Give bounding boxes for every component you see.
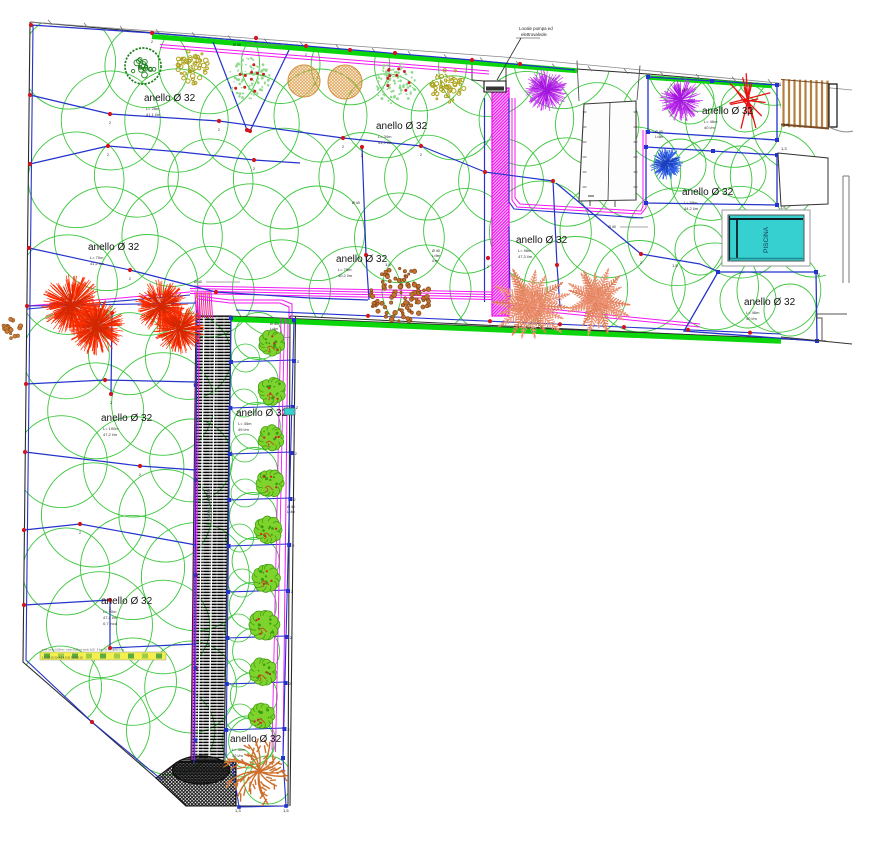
svg-text:2: 2 — [487, 265, 489, 269]
svg-text:1,5: 1,5 — [672, 263, 678, 268]
svg-text:L= 34m: L= 34m — [378, 134, 392, 139]
svg-text:Ø 40: Ø 40 — [352, 201, 360, 205]
svg-text:anello Ø 32: anello Ø 32 — [101, 413, 153, 424]
svg-text:L= 28m: L= 28m — [146, 106, 160, 111]
svg-text:1,5: 1,5 — [783, 122, 789, 127]
svg-text:40 l/m: 40 l/m — [746, 316, 758, 321]
svg-text:4 m³: 4 m³ — [432, 259, 438, 263]
svg-text:L= 45m: L= 45m — [238, 421, 252, 426]
svg-text:Ø 40: Ø 40 — [655, 130, 663, 134]
svg-text:1,3: 1,3 — [781, 146, 787, 151]
svg-text:2: 2 — [342, 145, 344, 149]
svg-text:anello Ø 32: anello Ø 32 — [236, 408, 288, 419]
svg-text:47,2 l/m: 47,2 l/m — [103, 432, 118, 437]
svg-text:2: 2 — [139, 473, 141, 477]
svg-text:Ø 40: Ø 40 — [233, 43, 241, 47]
svg-text:Ø 40: Ø 40 — [287, 505, 295, 509]
svg-text:2: 2 — [129, 277, 131, 281]
svg-text:L= 40m: L= 40m — [232, 747, 246, 752]
svg-text:2: 2 — [361, 154, 363, 158]
svg-text:rampa carrabile: rampa carrabile — [206, 488, 211, 520]
svg-text:L= 46m: L= 46m — [746, 310, 760, 315]
svg-text:L= 100m: L= 100m — [103, 426, 119, 431]
svg-text:anello Ø 32: anello Ø 32 — [744, 297, 796, 308]
svg-text:2: 2 — [107, 153, 109, 157]
svg-text:L=9m: L=9m — [432, 254, 440, 258]
svg-text:anello Ø 32: anello Ø 32 — [230, 734, 282, 745]
svg-text:anello Ø 32: anello Ø 32 — [88, 242, 140, 253]
svg-text:L= 70m: L= 70m — [90, 255, 104, 260]
svg-text:2: 2 — [151, 40, 153, 44]
svg-text:41,2 l/m: 41,2 l/m — [90, 261, 105, 266]
svg-text:0,7 inca: 0,7 inca — [103, 621, 118, 626]
svg-text:2: 2 — [640, 261, 642, 265]
svg-text:47,2 l/m: 47,2 l/m — [103, 615, 118, 620]
svg-text:2: 2 — [109, 121, 111, 125]
svg-text:elettrovalvole: elettrovalvole — [521, 32, 547, 37]
svg-text:44,2 l/m: 44,2 l/m — [684, 206, 699, 211]
svg-text:40 l/m: 40 l/m — [704, 125, 716, 130]
svg-text:1,5 1,5 10 3,0 4,0: 1,5 1,5 10 3,0 4,0 4,0 10 3,0 3,0 10 — [42, 656, 83, 660]
svg-text:L= 75m: L= 75m — [338, 267, 352, 272]
svg-text:2: 2 — [79, 531, 81, 535]
svg-text:41,1 l/m: 41,1 l/m — [146, 112, 161, 117]
svg-text:1,5: 1,5 — [385, 262, 391, 267]
svg-text:Ø 40: Ø 40 — [608, 225, 616, 229]
svg-text:2: 2 — [253, 167, 255, 171]
svg-text:serie: tondo 2x25mm - tondo 2x: serie: tondo 2x25mm - tondo 2x25mm tondo… — [42, 649, 125, 652]
svg-text:anello Ø 32: anello Ø 32 — [702, 106, 754, 117]
svg-text:2: 2 — [110, 401, 112, 405]
svg-text:anello Ø 32: anello Ø 32 — [144, 93, 196, 104]
svg-text:L=4m: L=4m — [270, 327, 278, 331]
svg-text:0,75: 0,75 — [158, 775, 167, 780]
svg-text:2: 2 — [218, 128, 220, 132]
svg-text:L= 58m: L= 58m — [684, 200, 698, 205]
svg-text:anello Ø 32: anello Ø 32 — [101, 596, 153, 607]
svg-text:40,2 l/m: 40,2 l/m — [338, 273, 353, 278]
svg-text:1,3: 1,3 — [235, 808, 241, 813]
svg-text:2: 2 — [109, 607, 111, 611]
svg-text:1,5: 1,5 — [283, 808, 289, 813]
svg-text:1,5: 1,5 — [683, 87, 689, 92]
svg-text:L= 96m: L= 96m — [518, 248, 532, 253]
svg-text:49 l/m: 49 l/m — [238, 427, 250, 432]
svg-text:1,5: 1,5 — [780, 205, 786, 210]
svg-text:anello Ø 32: anello Ø 32 — [376, 121, 428, 132]
svg-text:47,3 l/m: 47,3 l/m — [518, 254, 533, 259]
svg-text:Ø 40: Ø 40 — [270, 322, 278, 326]
svg-text:anello Ø 32: anello Ø 32 — [682, 187, 734, 198]
svg-text:Locale pompa ed: Locale pompa ed — [519, 26, 553, 31]
svg-text:anello Ø 32: anello Ø 32 — [336, 254, 388, 265]
svg-text:42 l/m: 42 l/m — [232, 753, 244, 758]
svg-text:41,9 l/m: 41,9 l/m — [378, 140, 393, 145]
svg-text:2: 2 — [420, 153, 422, 157]
svg-text:L=6m: L=6m — [655, 135, 663, 139]
svg-text:anello Ø 32: anello Ø 32 — [516, 235, 568, 246]
svg-text:Ø 40: Ø 40 — [194, 280, 202, 284]
svg-text:L=4m: L=4m — [287, 510, 295, 514]
svg-text:2: 2 — [305, 53, 307, 57]
svg-text:L= 46m: L= 46m — [704, 119, 718, 124]
svg-text:Ø 40: Ø 40 — [432, 249, 440, 253]
svg-text:PISCINA: PISCINA — [763, 226, 770, 253]
